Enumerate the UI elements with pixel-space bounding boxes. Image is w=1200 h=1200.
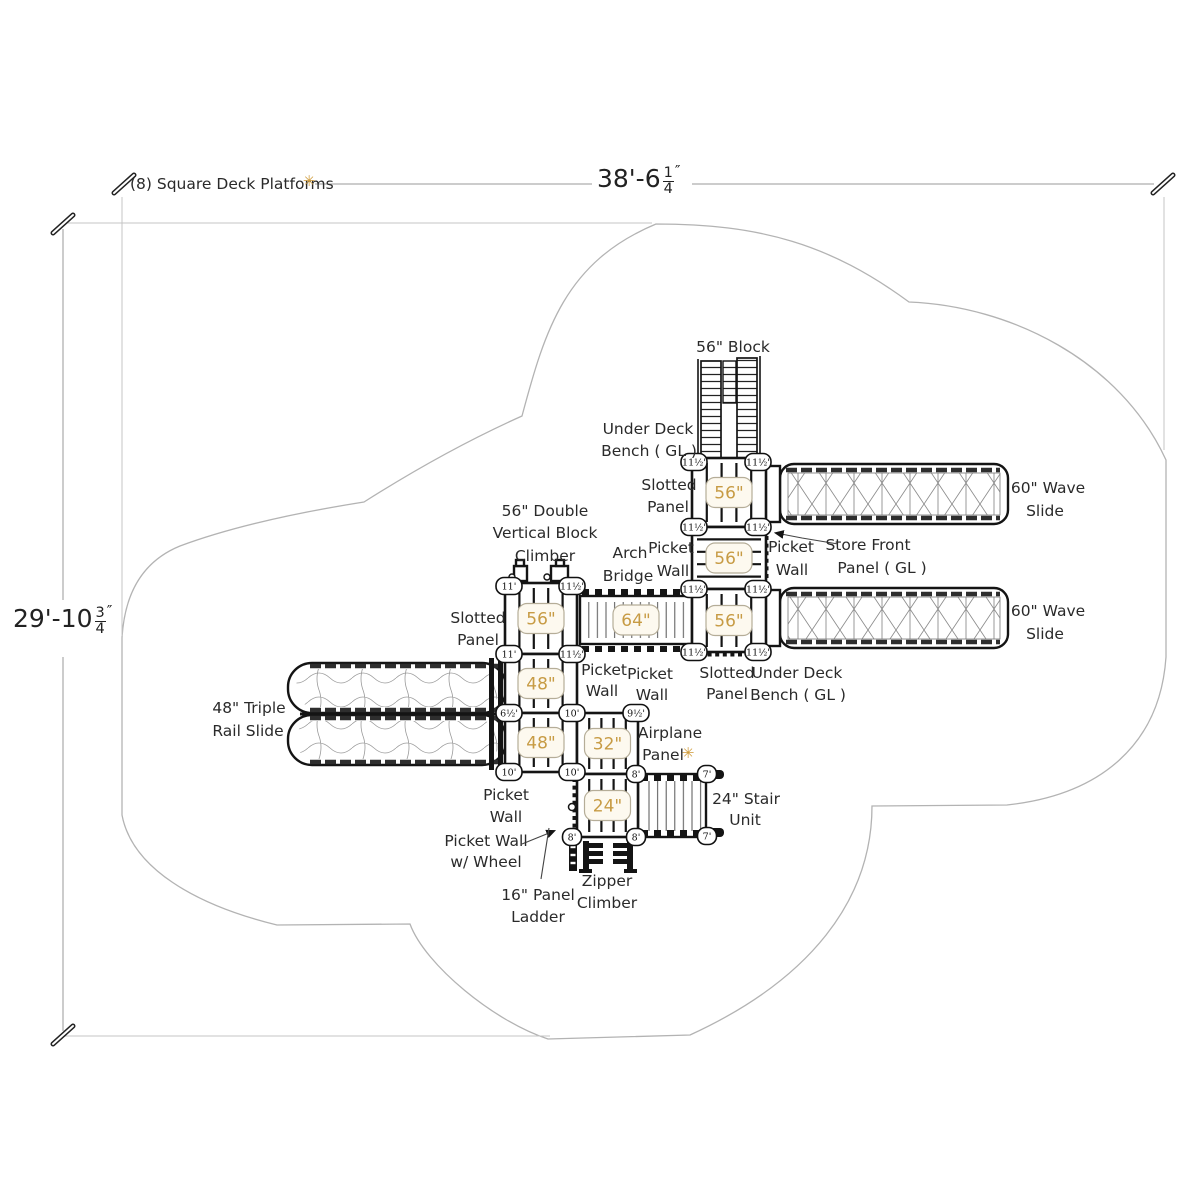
plan-label: Picket Wall [444, 832, 527, 850]
height-bubble: 10' [496, 764, 522, 781]
arch-bridge-label: Arch [613, 544, 648, 562]
plan-label: Wall [636, 686, 668, 704]
deck-size-value: 56" [714, 549, 743, 569]
height-bubble-value: 8' [568, 833, 577, 844]
plan-label: Climber [515, 547, 576, 565]
height-bubble-value: 11' [502, 650, 517, 661]
left-dimension-unit: ″ [107, 604, 113, 619]
deck-size-value: 48" [526, 675, 555, 695]
plan-label: Bench ( GL ) [750, 686, 846, 704]
height-bubble-value: 10' [565, 709, 580, 720]
plan-label: Under Deck [603, 420, 694, 438]
deck-platform-64: 64" [613, 605, 659, 635]
plan-label: Slide [1026, 502, 1064, 520]
wheel-icon [569, 804, 576, 811]
plan-label: Bench ( GL ) [601, 442, 697, 460]
height-bubble: 11½' [745, 581, 771, 598]
top-dimension-denominator: 4 [663, 181, 674, 197]
height-bubble: 8' [627, 829, 646, 846]
height-bubble: 11½' [745, 519, 771, 536]
wave-slide-bottom [764, 588, 1008, 648]
plan-label: w/ Wheel [450, 853, 521, 871]
left-dimension-text: 29'-1034″ [10, 606, 115, 637]
plan-label: Wall [657, 562, 689, 580]
plan-label: Unit [729, 811, 761, 829]
height-bubble-value: 8' [632, 770, 641, 781]
top-dimension-text: 38'-614″ [594, 166, 683, 197]
plan-label: Picket [648, 539, 694, 557]
plan-label: Store Front [825, 536, 910, 554]
height-bubble: 6½' [496, 705, 522, 722]
height-bubble: 11½' [681, 581, 707, 598]
double-climber-label: 56" Double [502, 502, 589, 520]
plan-label: Climber [577, 894, 638, 912]
height-bubble: 7' [698, 828, 717, 845]
plan-label: Picket [627, 665, 673, 683]
height-bubble: 8' [627, 766, 646, 783]
deck-platform-56: 56" [692, 589, 766, 652]
wave-slide-1-label: 60" Wave [1011, 479, 1085, 497]
height-bubble: 10' [559, 764, 585, 781]
height-bubble: 11' [496, 646, 522, 663]
height-bubble-value: 11½' [682, 585, 706, 596]
plan-label: Picket [768, 538, 814, 556]
height-bubble-value: 10' [502, 768, 517, 779]
height-bubble-value: 11½' [746, 523, 770, 534]
height-bubble: 11½' [559, 646, 585, 663]
height-bubble: 11' [496, 578, 522, 595]
deck-size-value: 32" [593, 735, 622, 755]
height-bubble: 11½' [681, 519, 707, 536]
triple-rail-slide-label: 48" Triple [212, 699, 285, 717]
top-dimension-unit: ″ [675, 164, 681, 179]
plan-label: Picket [483, 786, 529, 804]
deck-size-value: 64" [621, 611, 650, 631]
deck-platform-24: 24" [577, 774, 638, 837]
height-bubble: 9½' [623, 705, 649, 722]
height-bubble-value: 11½' [746, 458, 770, 469]
plan-label: Bridge [603, 567, 654, 585]
top-dimension-numerator: 1 [664, 166, 673, 181]
deck-size-value: 56" [714, 612, 743, 632]
height-bubble: 7' [698, 766, 717, 783]
left-dimension-numerator: 3 [96, 606, 105, 621]
platforms-asterisk: ✳ [303, 172, 316, 190]
height-bubble-value: 11' [502, 582, 517, 593]
height-bubble: 8' [563, 829, 582, 846]
height-bubble: 11½' [745, 644, 771, 661]
plan-label: Panel ( GL ) [837, 559, 926, 577]
plan-label: Under Deck [752, 664, 843, 682]
stair-unit-label: 24" Stair [712, 790, 781, 808]
height-bubble-value: 7' [703, 832, 712, 843]
panel-ladder-label: 16" Panel [501, 886, 575, 904]
plan-label: Wall [586, 682, 618, 700]
plan-label: Slotted [641, 476, 696, 494]
height-bubble-value: 6½' [500, 709, 518, 720]
height-bubble-value: 11½' [746, 648, 770, 659]
deck-size-value: 24" [593, 797, 622, 817]
plan-label: Vertical Block [493, 524, 598, 542]
airplane-panel-label: Airplane [638, 724, 702, 742]
height-bubble-value: 11½' [560, 650, 584, 661]
height-bubble-value: 10' [565, 768, 580, 779]
height-bubble-value: 9½' [627, 709, 645, 720]
plan-label: Ladder [511, 908, 565, 926]
deck-size-value: 48" [526, 734, 555, 754]
height-bubble-value: 11½' [682, 523, 706, 534]
height-bubble-value: 11½' [560, 582, 584, 593]
plan-label: Slotted [699, 664, 754, 682]
height-bubble-value: 7' [703, 770, 712, 781]
height-bubble: 10' [559, 705, 585, 722]
zipper-climber-label: Zipper [582, 872, 633, 890]
triple-rail-slide [288, 658, 506, 770]
block-climber-label: 56" Block [696, 338, 770, 356]
plan-label: Panel [647, 498, 689, 516]
height-bubble-value: 11½' [682, 648, 706, 659]
deck-platform-32: 32" [577, 713, 638, 774]
height-bubble-value: 11½' [746, 585, 770, 596]
zipper-climber [579, 841, 637, 873]
plan-label: Picket [581, 661, 627, 679]
deck-size-value: 56" [526, 610, 555, 630]
deck-size-value: 56" [714, 484, 743, 504]
height-bubble: 11½' [745, 454, 771, 471]
plan-label: Panel [457, 631, 499, 649]
left-dimension-denominator: 4 [95, 621, 106, 637]
block-climber [698, 356, 760, 462]
plan-label: Wall [776, 561, 808, 579]
plan-label: Wall [490, 808, 522, 826]
wave-slide-top [764, 464, 1008, 524]
plan-label: Slotted [450, 609, 505, 627]
height-bubble: 11½' [559, 578, 585, 595]
plan-label: Panel [706, 685, 748, 703]
height-bubble: 11½' [681, 644, 707, 661]
height-bubble-value: 8' [632, 833, 641, 844]
airplane-asterisk: ✳ [682, 744, 695, 762]
left-dimension-main: 29'-10 [13, 606, 93, 631]
plan-label: Slide [1026, 625, 1064, 643]
top-dimension-main: 38'-6 [597, 166, 661, 191]
playground-plan-canvas: 56"56"56"56"48"48"32"24"64" 11½'11½'11½'… [0, 0, 1200, 1200]
plan-label: Rail Slide [212, 722, 283, 740]
wave-slide-2-label: 60" Wave [1011, 602, 1085, 620]
plan-label: Panel [642, 746, 684, 764]
